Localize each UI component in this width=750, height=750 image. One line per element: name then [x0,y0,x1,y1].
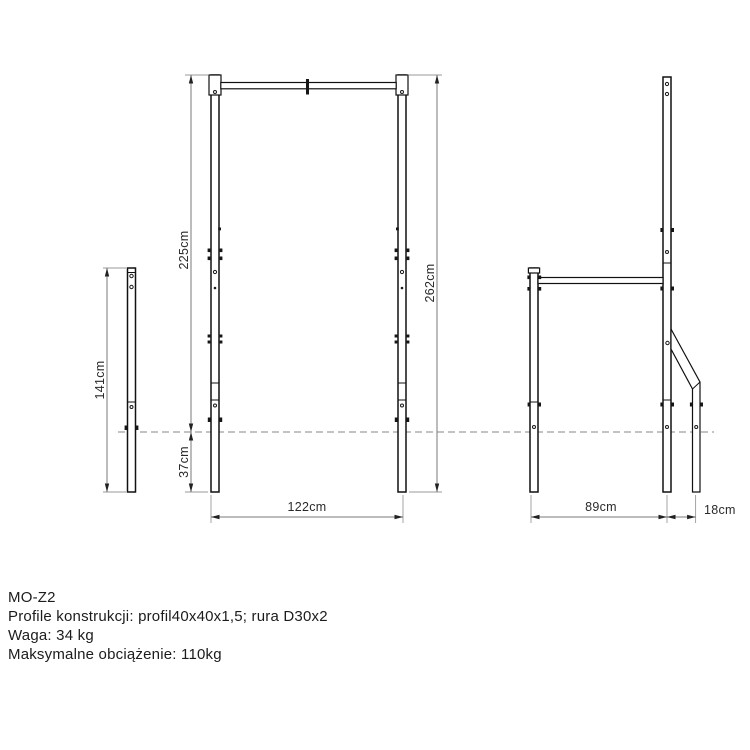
product-model: MO-Z2 [8,588,328,607]
side-front-post [530,268,538,492]
product-info: MO-Z2 Profile konstrukcji: profil40x40x1… [8,588,328,664]
side-bar [538,278,663,284]
frame-left-post [211,75,219,492]
dim-label-262cm: 262cm [423,263,437,302]
dim-18cm: 18cm [667,495,736,523]
pullup-bar-center-mark [306,79,309,95]
side-front-post-cap [528,268,539,273]
dim-label-89cm: 89cm [585,500,617,514]
side-rear-post [663,77,671,492]
dim-label-225cm: 225cm [177,230,191,269]
dim-262cm: 262cm [409,75,442,492]
dim-label-37cm: 37cm [177,446,191,478]
single-post-view [125,268,139,492]
technical-drawing: 141cm [0,0,750,560]
frame-right-post [398,75,406,492]
rear-brace [671,329,700,492]
product-max-load: Maksymalne obciążenie: 110kg [8,645,328,664]
dim-89cm: 89cm [531,495,667,523]
product-profiles: Profile konstrukcji: profil40x40x1,5; ru… [8,607,328,626]
dim-label-18cm: 18cm [704,503,736,517]
dim-label-122cm: 122cm [287,500,326,514]
dim-225cm: 225cm [177,75,208,432]
dim-122cm: 122cm [211,495,403,523]
dim-37cm: 37cm [177,432,208,492]
dim-141cm: 141cm [93,268,126,492]
side-view [527,77,703,492]
front-frame-view [208,75,410,492]
dim-label-141cm: 141cm [93,360,107,399]
product-weight: Waga: 34 kg [8,626,328,645]
single-post [128,268,136,492]
